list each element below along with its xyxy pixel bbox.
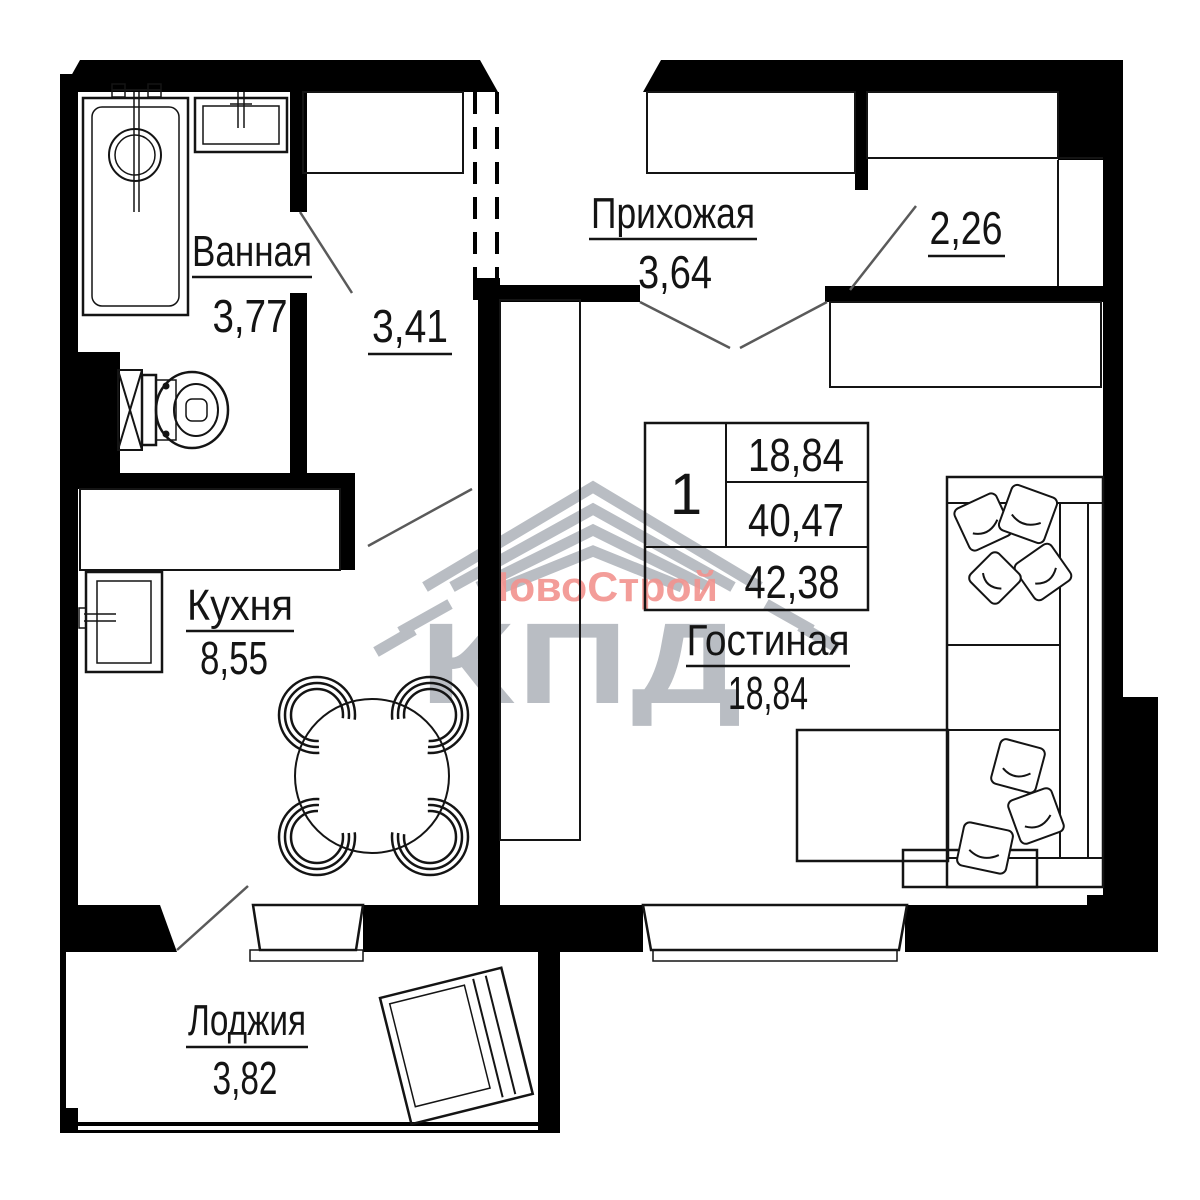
bathtub	[83, 84, 188, 315]
info-total-area: 42,38	[745, 556, 840, 608]
hall-wardrobe	[303, 92, 463, 173]
entry-hall-name: Прихожая	[591, 189, 755, 238]
bathroom-area: 3,77	[213, 290, 288, 342]
toilet	[118, 370, 228, 450]
dashed-passage	[475, 92, 497, 278]
dining-table	[295, 699, 449, 853]
label-wardrobe-room: 2,26	[928, 202, 1005, 256]
chair-top-left	[279, 677, 355, 753]
entry-hall-area: 3,64	[638, 246, 712, 298]
label-kitchen: Кухня 8,55	[186, 581, 294, 684]
loggia-door-swing	[177, 886, 248, 950]
kitchen-name: Кухня	[187, 581, 293, 630]
hall-corridor-area: 3,41	[372, 300, 448, 352]
kitchen-window	[250, 905, 363, 961]
floor-plan-canvas: НовоСтрой КПД	[0, 0, 1200, 1200]
wardrobe-room-area: 2,26	[930, 202, 1003, 254]
bathroom-name: Ванная	[192, 227, 312, 276]
sofa-pillows	[952, 483, 1073, 874]
dresser-cabinet	[830, 302, 1101, 387]
loggia-area: 3,82	[213, 1052, 278, 1104]
info-area-without-loggia: 40,47	[748, 494, 844, 546]
info-rooms-count: 1	[670, 462, 702, 527]
loggia-name: Лоджия	[188, 996, 306, 1045]
loggia-chair	[380, 968, 533, 1124]
bathroom-sink	[195, 92, 287, 152]
chair-bottom-right	[392, 799, 468, 875]
closet-door-swing	[850, 206, 916, 290]
sofa	[903, 477, 1103, 887]
kitchen-door-swing	[368, 489, 472, 546]
info-living-area: 18,84	[748, 429, 844, 481]
label-entry-hall: Прихожая 3,64	[589, 189, 757, 298]
living-room-name: Гостиная	[687, 616, 850, 665]
kitchen-sink-unit	[79, 572, 162, 672]
living-desk	[797, 730, 948, 861]
living-door-swing-right	[740, 302, 827, 348]
kitchen-counter	[80, 489, 340, 570]
label-hall-corridor: 3,41	[368, 300, 452, 354]
chair-bottom-left	[279, 799, 355, 875]
floor-plan-page: НовоСтрой КПД	[0, 0, 1200, 1200]
label-loggia: Лоджия 3,82	[186, 996, 308, 1104]
living-room-window	[643, 905, 907, 961]
kitchen-area: 8,55	[200, 632, 268, 684]
living-room-area: 18,84	[728, 667, 808, 719]
entry-wardrobe	[647, 92, 855, 173]
living-door-swing-left	[640, 302, 730, 348]
